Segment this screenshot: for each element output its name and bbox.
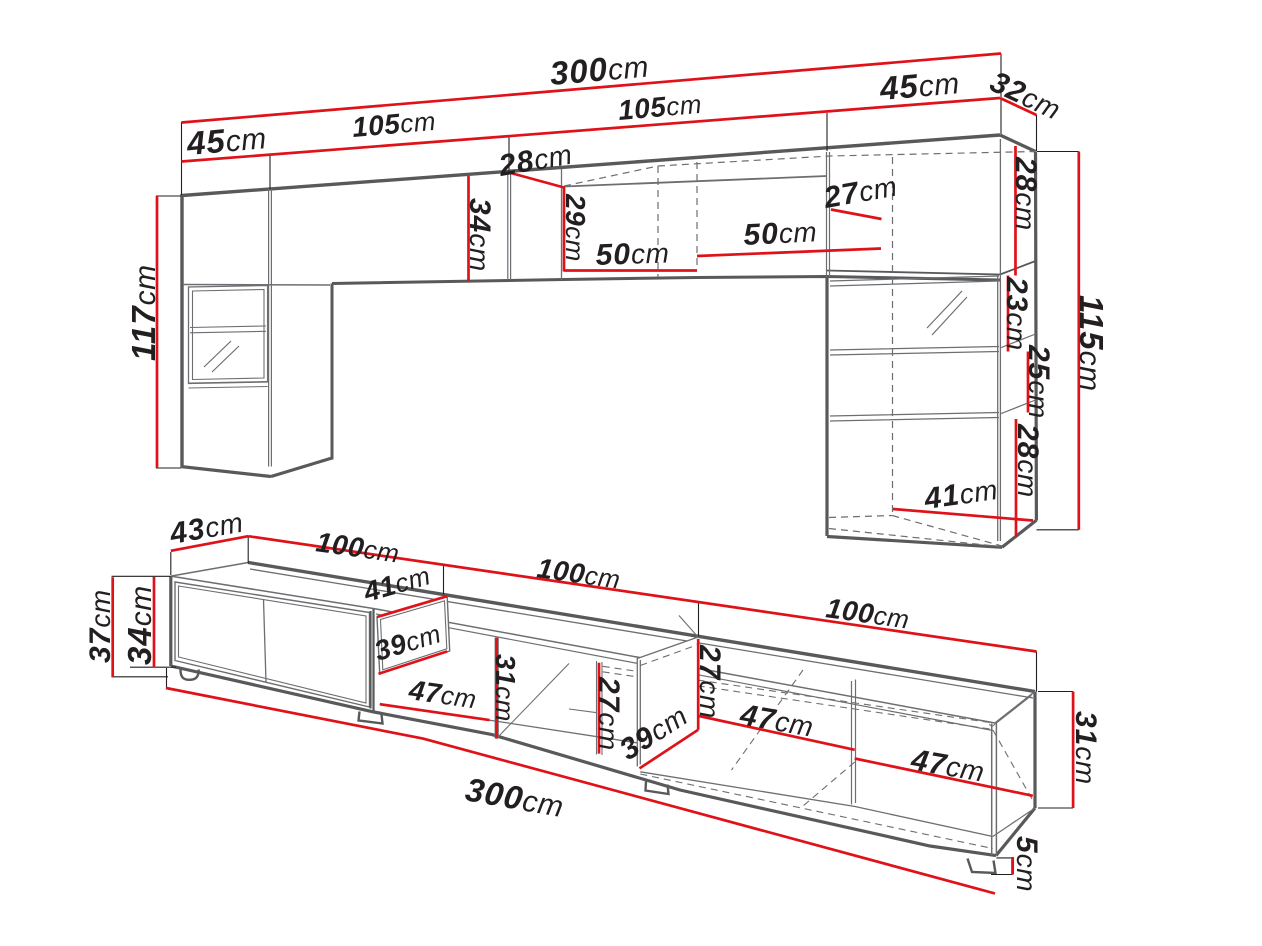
svg-text:29cm: 29cm — [560, 193, 591, 262]
svg-text:115cm: 115cm — [1073, 295, 1110, 392]
svg-text:45cm: 45cm — [877, 63, 961, 107]
svg-text:37cm: 37cm — [84, 589, 117, 663]
svg-text:23cm: 23cm — [1000, 276, 1033, 351]
svg-text:34cm: 34cm — [121, 585, 158, 665]
svg-text:25cm: 25cm — [1022, 344, 1055, 419]
svg-text:27cm: 27cm — [693, 644, 726, 719]
svg-text:50cm: 50cm — [595, 236, 670, 272]
svg-text:50cm: 50cm — [743, 215, 818, 252]
svg-text:31cm: 31cm — [490, 654, 521, 722]
svg-text:117cm: 117cm — [125, 264, 162, 361]
svg-text:28cm: 28cm — [1011, 423, 1044, 498]
svg-text:31cm: 31cm — [1069, 711, 1102, 785]
svg-text:5cm: 5cm — [1010, 836, 1043, 892]
svg-text:45cm: 45cm — [184, 118, 268, 162]
svg-text:28cm: 28cm — [1009, 156, 1042, 231]
svg-text:34cm: 34cm — [463, 198, 496, 272]
